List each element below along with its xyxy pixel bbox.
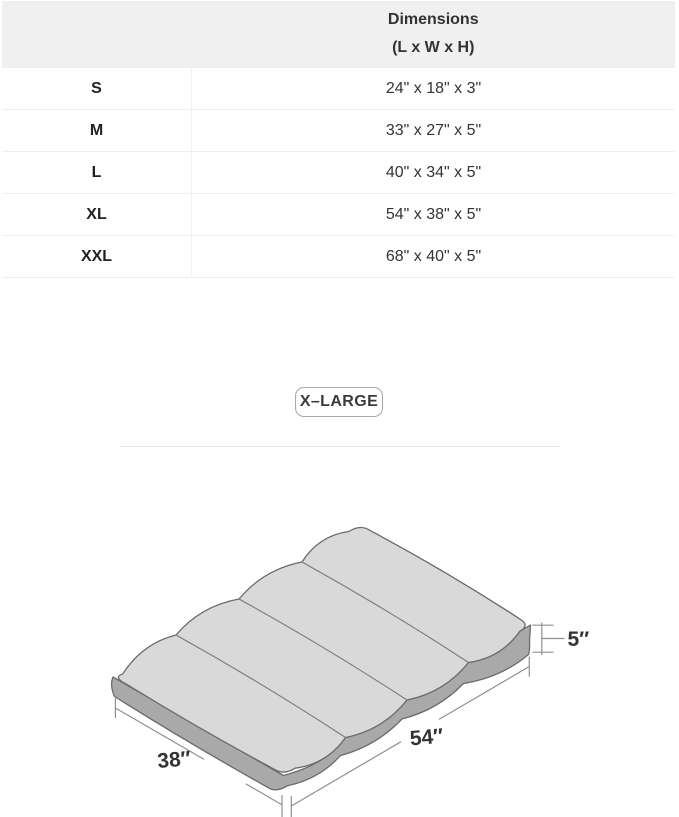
svg-text:5″: 5″: [568, 628, 590, 651]
svg-text:54″: 54″: [409, 725, 444, 751]
svg-text:38″: 38″: [156, 747, 191, 773]
